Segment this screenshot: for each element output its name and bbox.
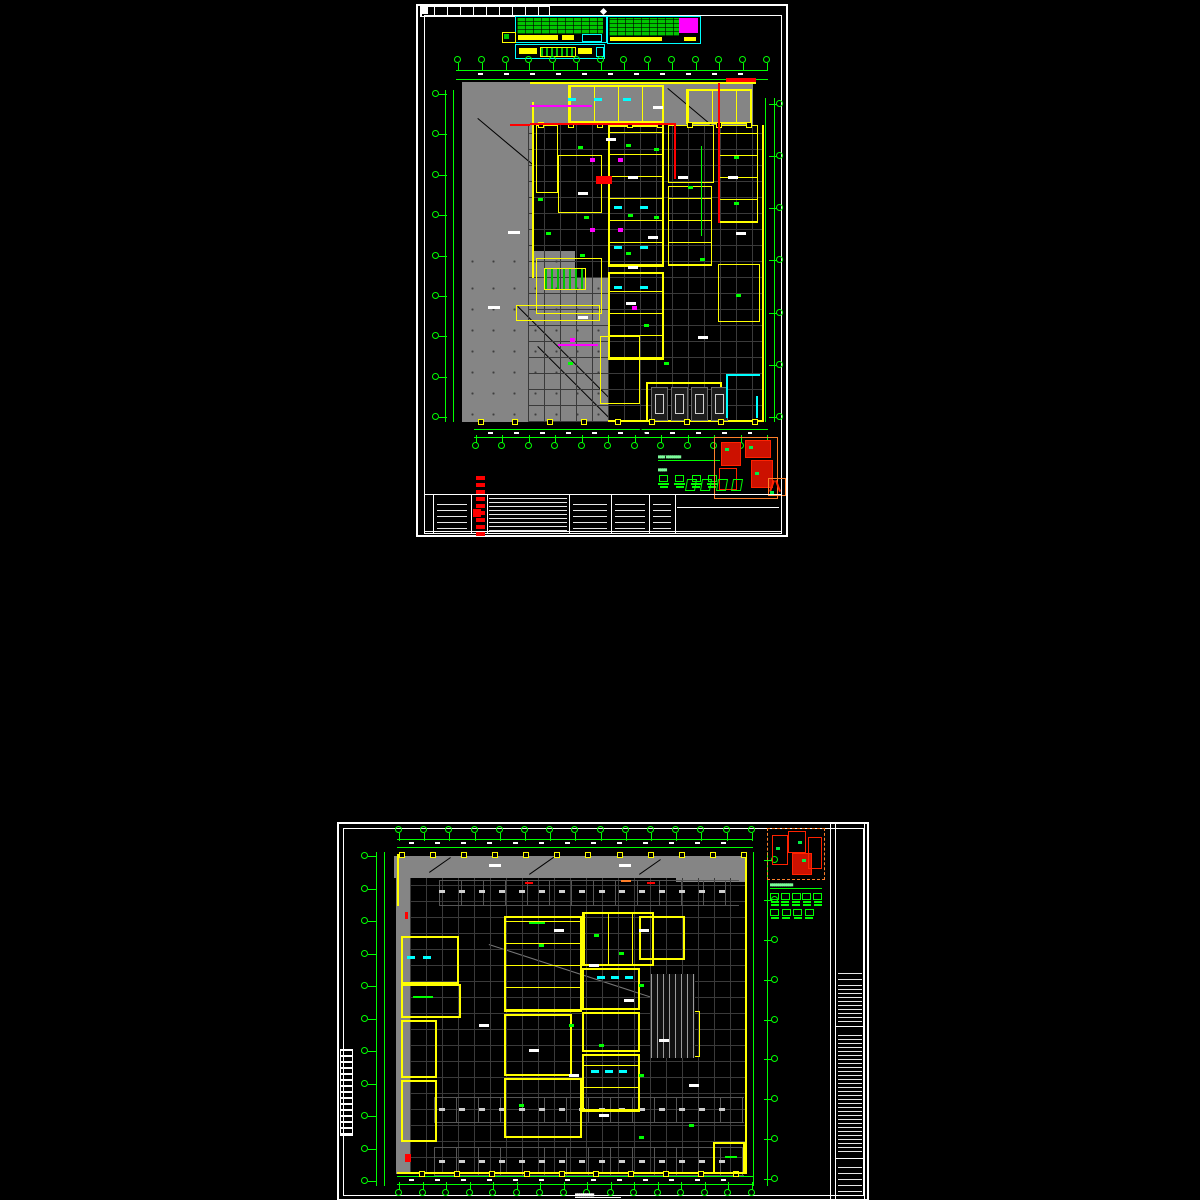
key-plan-outline — [788, 831, 806, 853]
room — [718, 264, 760, 322]
schedule-table-1-yellow-cell — [562, 35, 574, 40]
text-label — [529, 1049, 539, 1052]
grid-bubble — [771, 1055, 778, 1062]
vent-grille — [594, 98, 602, 101]
text-label — [653, 106, 663, 109]
legend-item — [793, 909, 802, 919]
title-block — [830, 824, 868, 1199]
sprinkler-symbol — [626, 252, 631, 255]
legend-symbol-icon — [781, 893, 790, 900]
column-marker — [746, 122, 752, 128]
grid-bubble — [472, 442, 479, 449]
sprinkler-symbol — [639, 1074, 644, 1077]
legend-text — [771, 904, 779, 906]
legend-symbol-icon — [805, 909, 814, 916]
legend-text — [771, 901, 779, 903]
grid-bubble — [536, 1189, 543, 1196]
legend-text — [814, 904, 822, 906]
grid-bubble — [597, 826, 604, 833]
grid-bubbles-top — [454, 56, 770, 63]
column-marker — [663, 1171, 669, 1177]
wall — [762, 125, 764, 421]
column-marker — [628, 1171, 634, 1177]
sheet-upper-plan: ▄▄▄—▄▄▄▄▄▄▄ ▄▄▄▄ — [416, 4, 788, 537]
grid-bubble — [361, 1047, 368, 1054]
vent-grille — [625, 976, 633, 979]
grid-bubble — [432, 332, 439, 339]
text-label — [508, 231, 520, 234]
room-equipment-table — [544, 268, 586, 290]
text-label — [578, 192, 588, 195]
legend-item — [770, 909, 779, 919]
magenta-pipe — [530, 105, 592, 107]
legend-text — [781, 904, 789, 906]
column-row-bottom — [419, 1171, 739, 1177]
text-label — [628, 176, 638, 179]
grid-bubble — [549, 56, 556, 63]
title-block-text — [615, 499, 645, 529]
elevator-car-icon — [651, 387, 668, 421]
sprinkler-symbol — [538, 198, 543, 201]
parking-row — [439, 880, 739, 906]
grid-bubble — [677, 1189, 684, 1196]
green-note — [413, 996, 433, 998]
vent-grille — [640, 246, 648, 249]
column-marker — [547, 419, 553, 425]
ramp-curb — [756, 396, 758, 418]
grid-bubble — [763, 56, 770, 63]
grid-bubble — [395, 1189, 402, 1196]
grid-bubble — [748, 1189, 755, 1196]
schedule-table-2-body — [609, 18, 679, 36]
grid-bubble — [525, 442, 532, 449]
legend-symbol-icon — [770, 909, 779, 916]
text-label — [698, 336, 708, 339]
schedule-table-3-cell-c — [578, 48, 592, 54]
dim-line — [765, 98, 766, 422]
dim-line — [453, 90, 454, 422]
title-block-revision-text — [489, 497, 567, 531]
sprinkler-symbol — [546, 232, 551, 235]
grid-bubble — [546, 826, 553, 833]
grid-bubble — [776, 413, 783, 420]
column-marker — [741, 852, 747, 858]
grid-bubble — [560, 1189, 567, 1196]
room — [568, 85, 664, 123]
sprinkler-symbol — [580, 254, 585, 257]
legend-symbol-icon — [793, 909, 802, 916]
grid-bubble — [361, 1177, 368, 1184]
parked-car-icons — [439, 1160, 739, 1163]
column-marker — [559, 1171, 565, 1177]
red-seal-stamp — [476, 476, 485, 536]
legend-text — [803, 904, 811, 906]
sprinkler-symbol — [619, 952, 624, 955]
grid-bubble — [724, 1189, 731, 1196]
legend-text — [803, 901, 811, 903]
drawing-caption: ▄▄▄▄▄▄▄▄▄ — [575, 1192, 621, 1198]
text-label — [589, 964, 599, 967]
grid-bubble — [442, 1189, 449, 1196]
grid-bubble — [361, 982, 368, 989]
legend-symbol-icon — [792, 893, 801, 900]
magenta-valve — [618, 158, 623, 162]
grid-bubble — [771, 1175, 778, 1182]
column-marker — [523, 852, 529, 858]
vent-grille — [614, 246, 622, 249]
fire-main-pipe — [718, 83, 720, 223]
sprinkler-symbol — [664, 362, 669, 365]
sprinkler-symbol — [578, 146, 583, 149]
plan-title: ▄▄▄—▄▄▄▄▄▄▄ — [658, 454, 720, 461]
grid-bubble — [419, 1189, 426, 1196]
column-marker — [718, 419, 724, 425]
green-note — [529, 922, 545, 924]
dim-labels-bottom — [488, 432, 752, 434]
wall — [397, 854, 399, 906]
green-note — [725, 1156, 737, 1158]
wall — [532, 102, 534, 278]
grid-bubble — [578, 442, 585, 449]
grid-bubble — [361, 885, 368, 892]
legend-symbol-icon — [813, 893, 822, 900]
text-label — [488, 306, 500, 309]
wall — [745, 854, 747, 1174]
grid-bubble — [573, 56, 580, 63]
dim-line — [384, 852, 385, 1186]
grid-bubble — [454, 56, 461, 63]
title-block-divider — [835, 824, 836, 1199]
key-plan-highlight — [725, 448, 729, 451]
grid-bubble — [466, 1189, 473, 1196]
counter — [407, 956, 415, 959]
grid-bubble — [701, 1189, 708, 1196]
grid-bubble — [361, 1080, 368, 1087]
legend-text — [805, 917, 813, 919]
schedule-table-2 — [607, 16, 701, 44]
red-duct — [726, 78, 756, 82]
text-label — [736, 232, 746, 235]
grid-bubble — [597, 56, 604, 63]
sprinkler-symbol — [688, 186, 693, 189]
grid-bubble — [432, 171, 439, 178]
column-marker — [454, 1171, 460, 1177]
grid-bubble — [361, 852, 368, 859]
sprinkler-symbol — [736, 294, 741, 297]
column-marker — [554, 852, 560, 858]
red-marker — [405, 1154, 411, 1162]
room — [668, 186, 712, 266]
column-marker — [399, 852, 405, 858]
room — [582, 1012, 640, 1052]
legend-symbol-icon — [659, 475, 668, 482]
key-plan-highlight — [749, 446, 753, 449]
magenta-valve — [590, 228, 595, 232]
elevator-hall — [646, 382, 722, 422]
legend-text — [782, 917, 790, 919]
dim-line — [376, 852, 377, 1186]
schedule-table-2-yellow-cell — [684, 37, 696, 41]
grid-bubble — [502, 56, 509, 63]
grid-bubble — [692, 56, 699, 63]
grid-bubble — [630, 1189, 637, 1196]
wall — [530, 82, 756, 84]
grid-bubble — [776, 204, 783, 211]
grid-bubble — [432, 90, 439, 97]
legend-text — [792, 901, 800, 903]
mini-table-logo — [421, 7, 428, 14]
text-label — [599, 1114, 609, 1117]
grid-bubble — [622, 826, 629, 833]
text-label — [569, 1074, 579, 1077]
grid-bubble — [776, 152, 783, 159]
key-plan-outline — [772, 835, 788, 865]
fire-main-pipe — [674, 123, 676, 179]
key-plan-block — [745, 440, 771, 458]
text-label — [489, 864, 501, 867]
grid-bubble — [471, 826, 478, 833]
legend-text — [674, 483, 685, 485]
room — [401, 1080, 437, 1142]
grid-bubble — [496, 826, 503, 833]
text-label — [659, 1039, 669, 1042]
room — [504, 1078, 582, 1138]
orange-marker — [621, 880, 631, 882]
grid-bubble — [654, 1189, 661, 1196]
title-block-sheet-number — [838, 1164, 862, 1192]
column-marker — [684, 419, 690, 425]
grid-bubble — [631, 442, 638, 449]
title-block-rule — [836, 1026, 864, 1027]
column-marker — [710, 852, 716, 858]
legend-symbol-icon — [675, 475, 684, 482]
schedule-table-3-cell-a — [519, 48, 537, 54]
magenta-valve — [570, 338, 575, 342]
grid-bubble — [771, 1016, 778, 1023]
title-block-rule — [836, 1158, 864, 1159]
grid-bubble — [432, 252, 439, 259]
grid-bubbles-top — [395, 826, 755, 833]
legend-item — [674, 475, 685, 488]
magenta-valve — [618, 228, 623, 232]
grid-bubble — [776, 256, 783, 263]
sprinkler-symbol — [539, 944, 544, 947]
sprinkler-symbol — [626, 144, 631, 147]
dim-line — [753, 852, 754, 1186]
grid-bubble — [571, 826, 578, 833]
key-plan-highlight — [798, 841, 802, 844]
text-label — [626, 302, 636, 305]
sprinkler-symbol — [569, 1024, 574, 1027]
room — [536, 125, 558, 193]
dim-line — [456, 79, 768, 80]
grid-bubble — [723, 826, 730, 833]
title-block-text — [573, 499, 607, 529]
title-block-divider — [487, 495, 488, 533]
stamp-icon — [731, 479, 743, 491]
grid-bubble — [672, 826, 679, 833]
sprinkler-symbol — [599, 1044, 604, 1047]
sheet-lower-plan: ▄▄▄▄▄▄▄▄▄▄▄ ▄▄▄▄▄▄▄▄▄ — [337, 822, 869, 1200]
plan-legend: ▄▄▄▄▄▄▄▄▄▄▄ — [770, 882, 822, 919]
legend-item — [802, 893, 811, 906]
column-marker — [679, 852, 685, 858]
vent-grille — [640, 286, 648, 289]
elevator-bank — [651, 387, 728, 421]
room — [718, 125, 758, 223]
schedule-table-1-yellow-bar — [518, 35, 558, 40]
title-block-revision-text — [838, 1032, 862, 1152]
sprinkler-symbol — [519, 1104, 524, 1107]
legend-item — [805, 909, 814, 919]
revision-edge-strip — [340, 1049, 353, 1136]
dim-line — [397, 1184, 753, 1185]
sprinkler-symbol — [594, 934, 599, 937]
legend-text — [794, 917, 802, 919]
sprinkler-symbol — [628, 214, 633, 217]
column-marker — [581, 419, 587, 425]
grid-bubble — [697, 826, 704, 833]
grid-bubble — [739, 56, 746, 63]
grid-bubble — [478, 56, 485, 63]
vent-grille — [611, 976, 619, 979]
approval-stamp-icons — [686, 479, 742, 491]
column-marker — [617, 852, 623, 858]
elevator-car-icon — [671, 387, 688, 421]
title-block-rule — [677, 507, 779, 508]
title-block-text — [838, 972, 862, 980]
legend-item — [782, 909, 791, 919]
grid-bubbles-right — [776, 100, 783, 420]
grid-bubble — [445, 826, 452, 833]
legend-symbol-icon — [782, 909, 791, 916]
column-marker — [489, 1171, 495, 1177]
plan-title: ▄▄▄▄▄▄▄▄▄▄▄ — [770, 882, 822, 889]
sprinkler-symbol — [654, 148, 659, 151]
ramp-curb — [726, 374, 760, 376]
key-plan-block — [721, 442, 741, 466]
legend-heading: ▄▄▄▄ — [658, 467, 720, 472]
text-label — [639, 929, 649, 932]
legend-text — [771, 917, 779, 919]
sprinkler-symbol — [639, 984, 644, 987]
schedule-table-1-cyan-cell — [582, 34, 602, 42]
vent-grille — [605, 1070, 613, 1073]
dim-labels-top — [409, 842, 739, 844]
grid-bubble — [776, 100, 783, 107]
stamp-icon — [685, 479, 697, 491]
legend-text — [660, 486, 668, 488]
schedule-table-1-body — [517, 18, 603, 34]
room — [401, 936, 459, 984]
grid-bubble — [525, 56, 532, 63]
grid-bubble — [657, 442, 664, 449]
column-marker — [524, 1171, 530, 1177]
grid-bubbles-left — [361, 852, 368, 1184]
red-marker — [405, 912, 408, 919]
dim-line — [445, 90, 446, 422]
title-block-divider — [611, 495, 612, 533]
grid-bubble — [432, 292, 439, 299]
vent-grille — [623, 98, 631, 101]
text-label — [578, 316, 588, 319]
legend-item — [792, 893, 801, 906]
grid-bubble — [620, 56, 627, 63]
column-row-top — [399, 852, 747, 858]
title-block-text — [653, 499, 671, 529]
room-core — [504, 916, 582, 1012]
text-label — [606, 138, 616, 141]
counter — [423, 956, 431, 959]
grid-bubble — [513, 1189, 520, 1196]
legend-item — [770, 893, 779, 906]
sprinkler-symbol — [734, 202, 739, 205]
legend-text — [676, 486, 684, 488]
elevator-car-icon — [691, 387, 708, 421]
column-marker — [615, 419, 621, 425]
room — [504, 1014, 572, 1076]
dim-line — [397, 847, 753, 848]
north-mark — [600, 8, 607, 15]
magenta-valve — [590, 158, 595, 162]
title-block-divider — [675, 495, 676, 533]
dim-line — [456, 70, 768, 71]
grid-bubble — [684, 442, 691, 449]
grid-bubble — [715, 56, 722, 63]
fire-main-pipe — [530, 123, 676, 125]
title-block-stamp-area — [838, 984, 862, 1022]
key-plan-highlight — [755, 472, 759, 475]
grid-bubble — [395, 826, 402, 833]
column-marker — [461, 852, 467, 858]
vent-grille — [640, 206, 648, 209]
text-label — [554, 929, 564, 932]
column-marker — [430, 852, 436, 858]
title-block-divider — [649, 495, 650, 533]
grid-bubble — [521, 826, 528, 833]
title-block-left-text — [437, 499, 467, 529]
dim-line — [397, 839, 753, 840]
text-label — [619, 864, 631, 867]
grid-bubble — [771, 1135, 778, 1142]
grid-bubble — [420, 826, 427, 833]
legend-symbol-icon — [802, 893, 811, 900]
schedule-table-1 — [515, 16, 607, 43]
grid-bubble — [432, 373, 439, 380]
column-marker — [593, 1171, 599, 1177]
grid-bubble — [776, 361, 783, 368]
sprinkler-symbol — [644, 324, 649, 327]
column-marker — [698, 1171, 704, 1177]
title-block-divider — [433, 495, 434, 533]
sprinkler-symbol — [639, 1136, 644, 1139]
room — [600, 336, 640, 404]
schedule-table-2-magenta-block — [679, 18, 698, 33]
key-plan-outline — [808, 837, 822, 869]
stamp-icon — [716, 479, 728, 491]
schedule-table-2-yellow-bar — [610, 37, 662, 41]
grid-bubble — [432, 130, 439, 137]
ramp-curb — [726, 374, 728, 418]
riser-line — [701, 146, 702, 236]
title-block-divider — [471, 495, 472, 533]
column-marker — [492, 852, 498, 858]
key-plan-inset — [767, 828, 825, 880]
key-plan-highlight — [776, 847, 780, 850]
dim-labels-top — [478, 73, 748, 75]
legend-items-row1 — [770, 893, 822, 906]
column-marker — [512, 419, 518, 425]
